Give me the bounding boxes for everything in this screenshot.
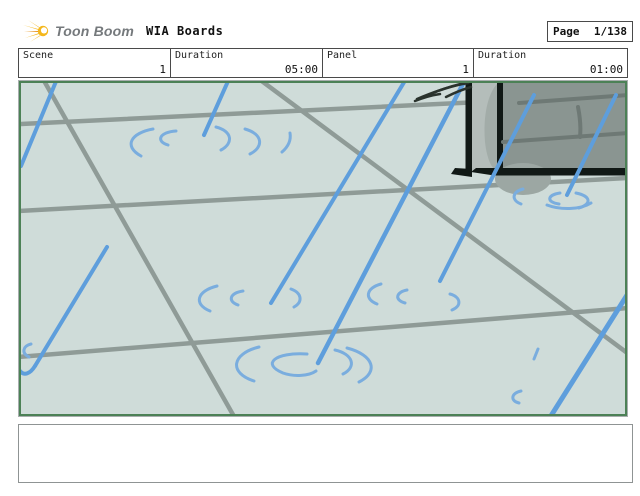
panel-duration-value: 01:00 — [474, 63, 627, 77]
page-number: 1/138 — [594, 25, 627, 38]
scene-label: Scene — [19, 49, 170, 61]
storyboard-page: Toon Boom WIA Boards Page 1/138 Scene 1 … — [0, 0, 640, 496]
scene-duration-value: 05:00 — [171, 63, 322, 77]
panel-duration-cell: Duration 01:00 — [474, 49, 627, 77]
scene-value: 1 — [19, 63, 170, 77]
scene-cell: Scene 1 — [19, 49, 171, 77]
caption-box — [18, 424, 633, 483]
storyboard-panel-frame — [18, 80, 628, 417]
toonboom-logo-icon — [22, 17, 52, 45]
storyboard-drawing — [19, 81, 627, 416]
rainy-pavement-drawing — [21, 83, 625, 414]
scene-duration-label: Duration — [171, 49, 322, 61]
panel-value: 1 — [323, 63, 473, 77]
header: Toon Boom WIA Boards — [22, 16, 223, 46]
page-counter: Page 1/138 — [547, 21, 633, 42]
panel-duration-label: Duration — [474, 49, 627, 61]
scene-duration-cell: Duration 05:00 — [171, 49, 323, 77]
panel-cell: Panel 1 — [323, 49, 474, 77]
document-title: WIA Boards — [146, 24, 223, 38]
panel-label: Panel — [323, 49, 473, 61]
logo-wordmark: Toon Boom — [55, 23, 134, 39]
panel-info-table: Scene 1 Duration 05:00 Panel 1 Duration … — [18, 48, 628, 78]
page-label: Page — [553, 25, 580, 38]
dumpster-leg-foot — [451, 168, 472, 177]
dumpster-front-leg — [466, 83, 473, 173]
